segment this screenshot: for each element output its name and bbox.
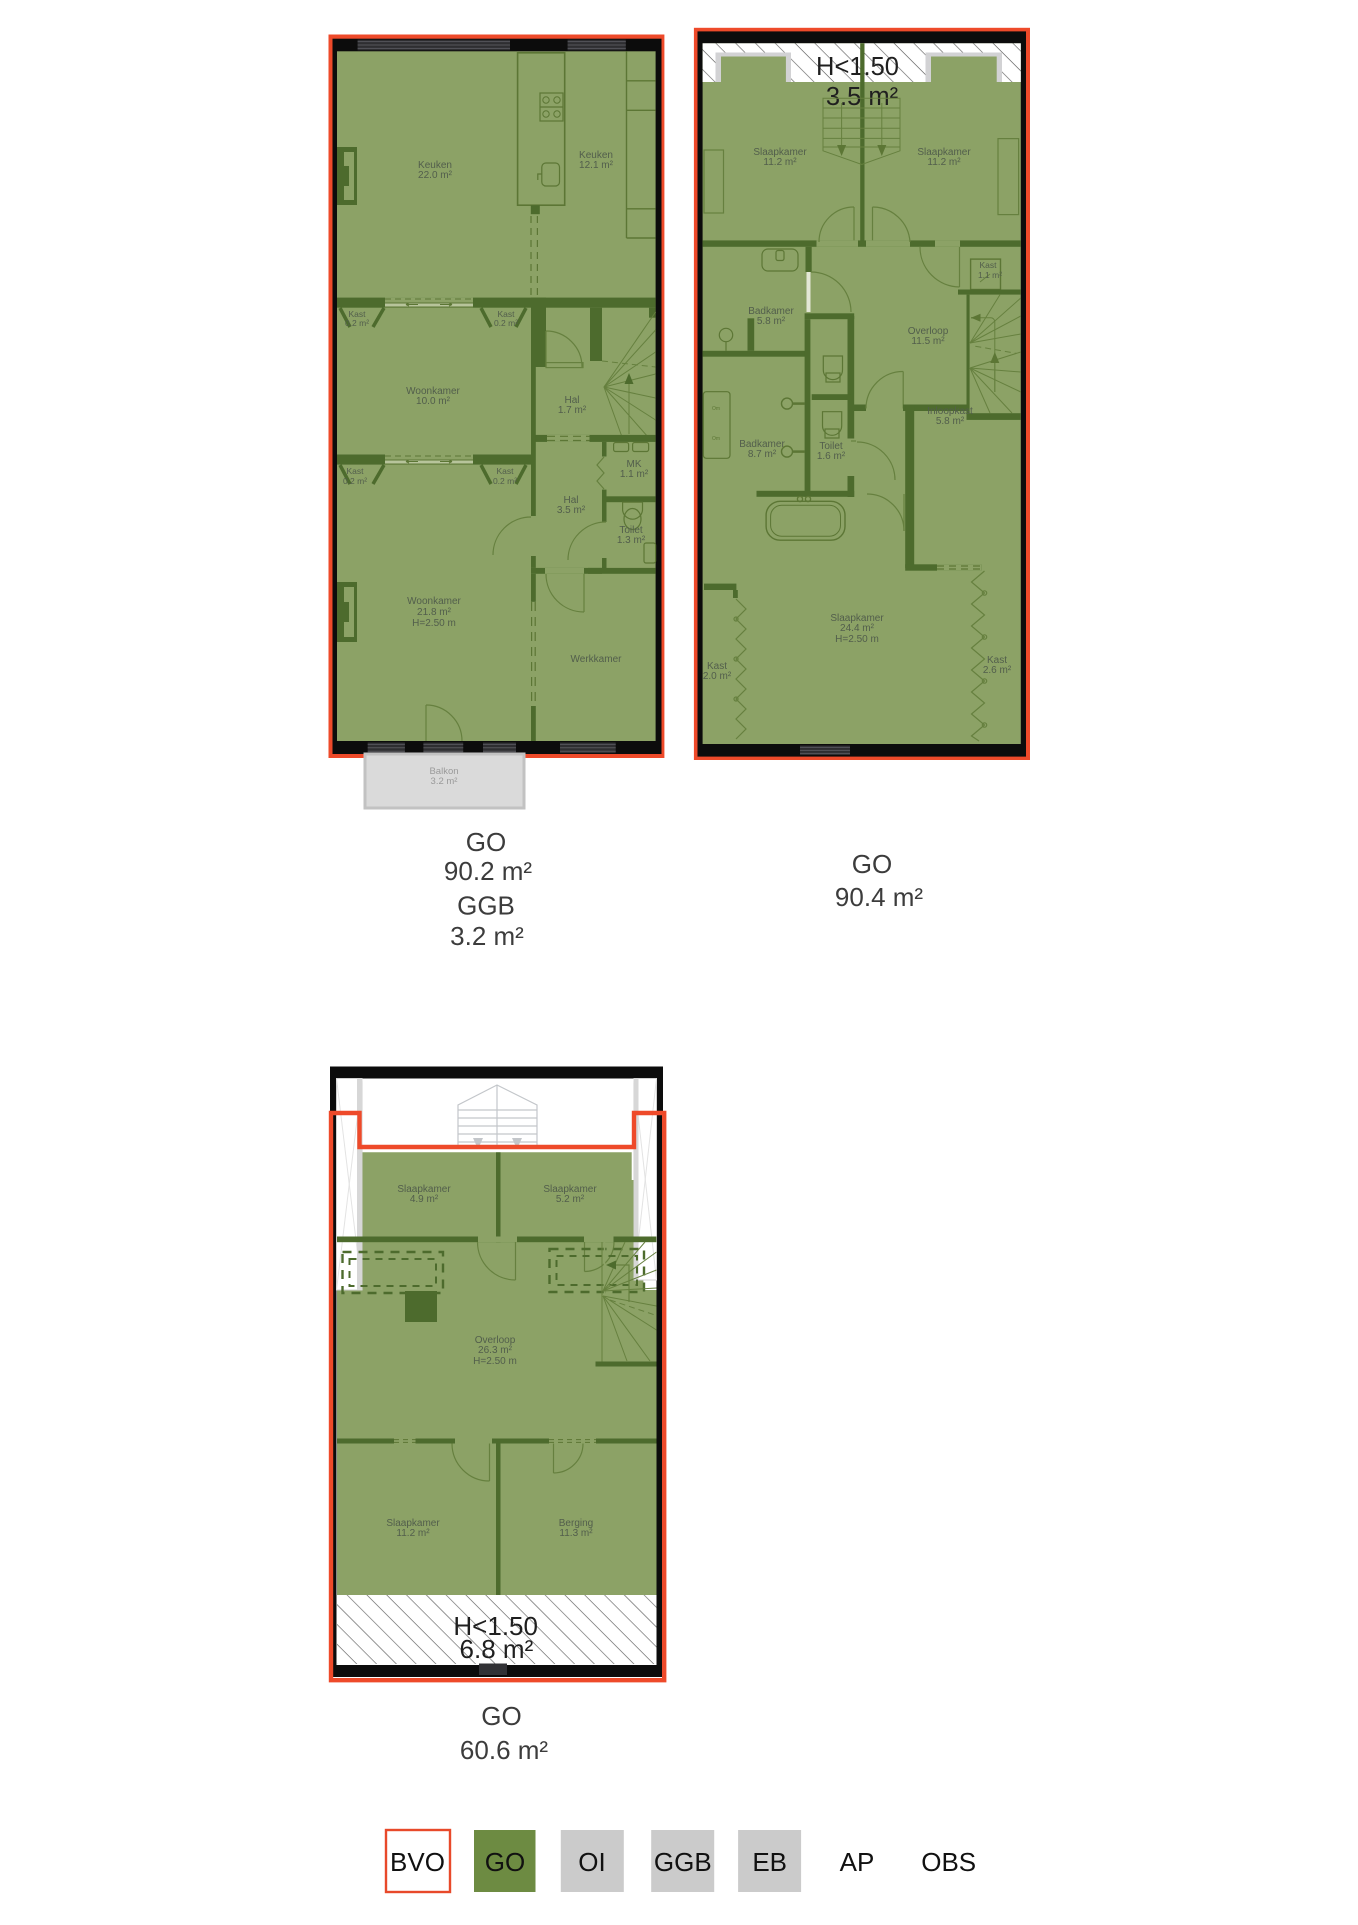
svg-text:GGB: GGB — [457, 891, 515, 921]
svg-text:0.2 m²: 0.2 m² — [345, 318, 369, 328]
svg-text:11.2 m²: 11.2 m² — [396, 1528, 430, 1539]
svg-text:22.0 m²: 22.0 m² — [418, 170, 453, 181]
svg-text:12.1 m²: 12.1 m² — [579, 160, 614, 171]
svg-text:90.2 m²: 90.2 m² — [444, 856, 532, 886]
svg-text:5.8 m²: 5.8 m² — [936, 416, 965, 427]
svg-text:1.1 m²: 1.1 m² — [620, 469, 649, 480]
svg-text:AP: AP — [840, 1847, 875, 1877]
svg-text:H=2.50 m: H=2.50 m — [473, 1356, 517, 1367]
svg-text:3.2 m²: 3.2 m² — [431, 776, 458, 787]
svg-text:H=2.50 m: H=2.50 m — [835, 634, 879, 645]
svg-text:H=2.50 m: H=2.50 m — [412, 618, 456, 629]
svg-text:2.0 m²: 2.0 m² — [703, 671, 732, 682]
svg-text:1.7 m²: 1.7 m² — [558, 405, 587, 416]
svg-text:1.3 m²: 1.3 m² — [617, 535, 646, 546]
svg-text:5.2 m²: 5.2 m² — [556, 1194, 585, 1205]
svg-text:1.6 m²: 1.6 m² — [817, 451, 846, 462]
svg-text:3.2 m²: 3.2 m² — [450, 921, 524, 951]
svg-text:0.2 m²: 0.2 m² — [343, 476, 367, 486]
svg-text:GGB: GGB — [654, 1847, 712, 1877]
svg-text:3.5 m²: 3.5 m² — [557, 505, 586, 516]
svg-text:11.5 m²: 11.5 m² — [911, 336, 945, 347]
svg-text:H<1.50: H<1.50 — [816, 53, 899, 81]
svg-text:11.2 m²: 11.2 m² — [927, 157, 961, 168]
svg-text:0.2 m²: 0.2 m² — [493, 476, 517, 486]
svg-text:4.9 m²: 4.9 m² — [410, 1194, 439, 1205]
svg-text:0.2 m²: 0.2 m² — [494, 318, 518, 328]
svg-text:Werkkamer: Werkkamer — [571, 654, 623, 665]
svg-text:Kast: Kast — [496, 466, 514, 476]
svg-text:Kast: Kast — [979, 260, 997, 270]
svg-text:1.1 m²: 1.1 m² — [978, 270, 1002, 280]
svg-text:Om: Om — [712, 436, 720, 442]
svg-text:5.8 m²: 5.8 m² — [757, 316, 786, 327]
svg-text:Om: Om — [712, 406, 720, 412]
svg-text:GO: GO — [852, 849, 892, 879]
svg-text:10.0 m²: 10.0 m² — [416, 396, 451, 407]
svg-text:2.6 m²: 2.6 m² — [983, 665, 1012, 676]
svg-text:6.8 m²: 6.8 m² — [460, 1634, 534, 1664]
svg-text:Kast: Kast — [346, 466, 364, 476]
svg-text:GO: GO — [466, 827, 506, 857]
svg-text:EB: EB — [752, 1847, 787, 1877]
svg-text:11.2 m²: 11.2 m² — [763, 157, 797, 168]
svg-text:OI: OI — [578, 1847, 605, 1877]
svg-text:24.4 m²: 24.4 m² — [840, 623, 875, 634]
svg-text:Woonkamer: Woonkamer — [407, 596, 461, 607]
svg-text:8.7 m²: 8.7 m² — [748, 449, 777, 460]
svg-text:90.4 m²: 90.4 m² — [835, 882, 923, 912]
svg-text:26.3 m²: 26.3 m² — [478, 1345, 513, 1356]
svg-text:BVO: BVO — [390, 1847, 445, 1877]
svg-text:21.8 m²: 21.8 m² — [417, 607, 452, 618]
svg-text:GO: GO — [481, 1701, 521, 1731]
svg-text:11.3 m²: 11.3 m² — [559, 1528, 593, 1539]
svg-text:60.6 m²: 60.6 m² — [460, 1735, 548, 1765]
svg-text:GO: GO — [485, 1847, 525, 1877]
svg-text:OBS: OBS — [921, 1847, 976, 1877]
